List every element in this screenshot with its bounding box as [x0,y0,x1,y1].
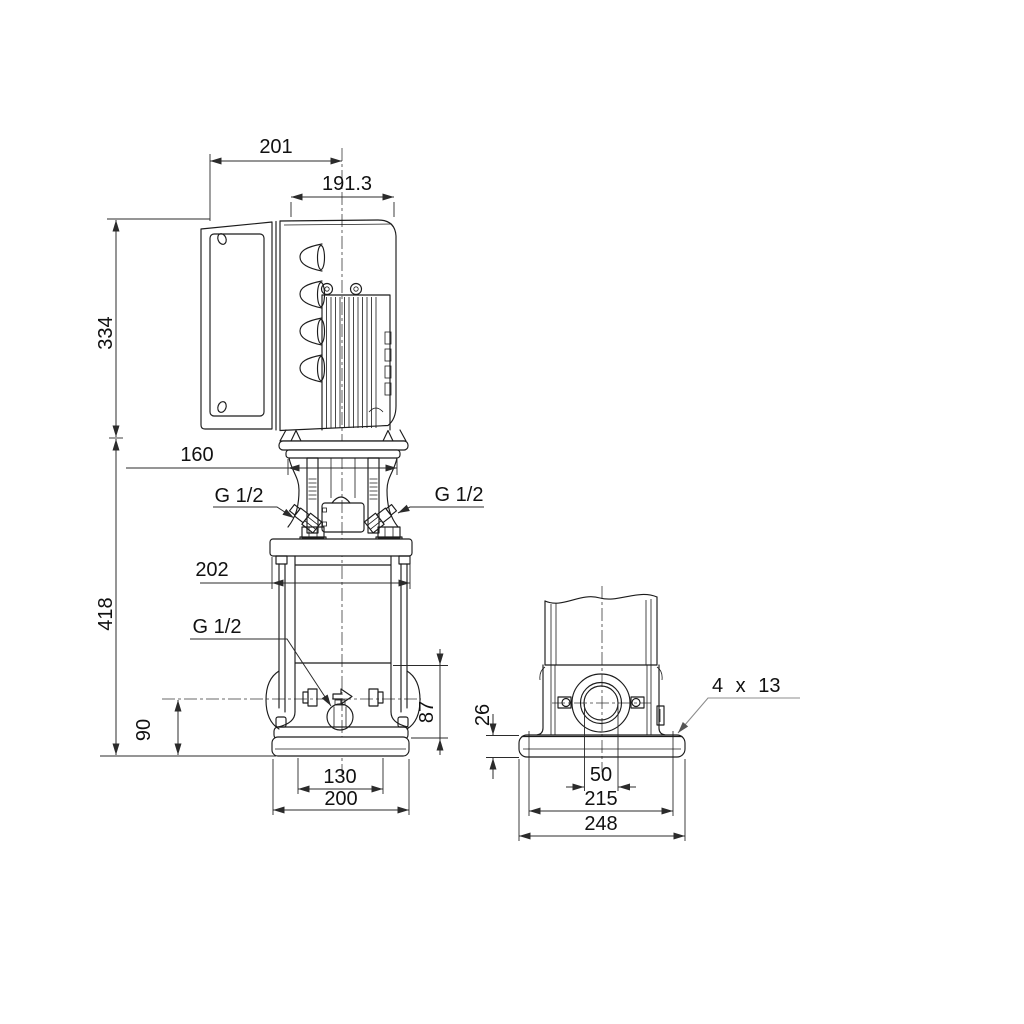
side-plug-boss-right [631,697,644,708]
side-base-casting [537,665,665,735]
dim-motor-width: 191.3 [291,173,394,217]
dim-head-width: 202 [195,557,410,589]
plug-boss-right [369,689,383,706]
dim-port-bore-label: 50 [590,764,612,786]
dim-motor-height-label: 334 [95,316,117,349]
motor-body [280,220,396,431]
dim-plate-width-label: 248 [584,813,617,835]
dimensions-side: 26 50 215 248 4 x 13 [472,675,800,841]
break-line [545,594,657,603]
label-port-drain: G 1/2 [190,616,331,706]
dim-motor-height: 334 [95,219,210,438]
port-drain-label: G 1/2 [193,616,242,638]
dimensions-front: 201 191.3 334 418 160 202 [95,136,484,815]
label-port-top-right: G 1/2 [398,484,484,513]
port-top-right-label: G 1/2 [435,484,484,506]
label-mounting-holes: 4 x 13 [678,675,800,733]
dim-base-section-height-label: 87 [416,701,438,723]
plug-boss-left [303,689,317,706]
dim-port-height: 90 [133,700,178,755]
dim-flange-width-label: 160 [180,444,213,466]
motor-fins [322,295,391,430]
mounting-holes-label: 4 x 13 [712,675,780,697]
port-top-left-label: G 1/2 [215,485,264,507]
drain-plug [327,700,353,730]
side-view [519,586,685,772]
dim-plate-thickness-label: 26 [472,704,494,726]
dim-head-width-label: 202 [195,559,228,581]
head-flange [270,539,412,556]
label-port-top-left: G 1/2 [213,485,294,518]
dim-hole-spacing-label: 215 [584,788,617,810]
control-box [201,221,280,431]
dim-pump-height-label: 418 [95,597,117,630]
side-plug-boss-left [558,697,571,708]
motor-screws [322,284,362,295]
technical-drawing: 201 191.3 334 418 160 202 [0,0,1024,1024]
side-drain-boss [657,706,664,725]
dim-motor-width-label: 191.3 [322,173,372,195]
pump-head [270,458,412,556]
motor-adapter [279,430,408,458]
dim-plate-thickness: 26 [472,704,519,779]
dim-port-height-label: 90 [133,719,155,741]
dim-total-width-label: 201 [259,136,292,158]
dim-foot-width-label: 200 [324,788,357,810]
side-sleeve [545,594,657,665]
pump-dimensional-drawing-page: 201 191.3 334 418 160 202 [0,0,1024,1024]
dim-port-bore: 50 [566,704,636,791]
motor-tabs [300,244,325,382]
flow-direction-arrow [333,689,352,704]
port-flange-left [266,671,279,729]
pump-foot [272,712,409,756]
dim-foot-inner-width-label: 130 [323,766,356,788]
